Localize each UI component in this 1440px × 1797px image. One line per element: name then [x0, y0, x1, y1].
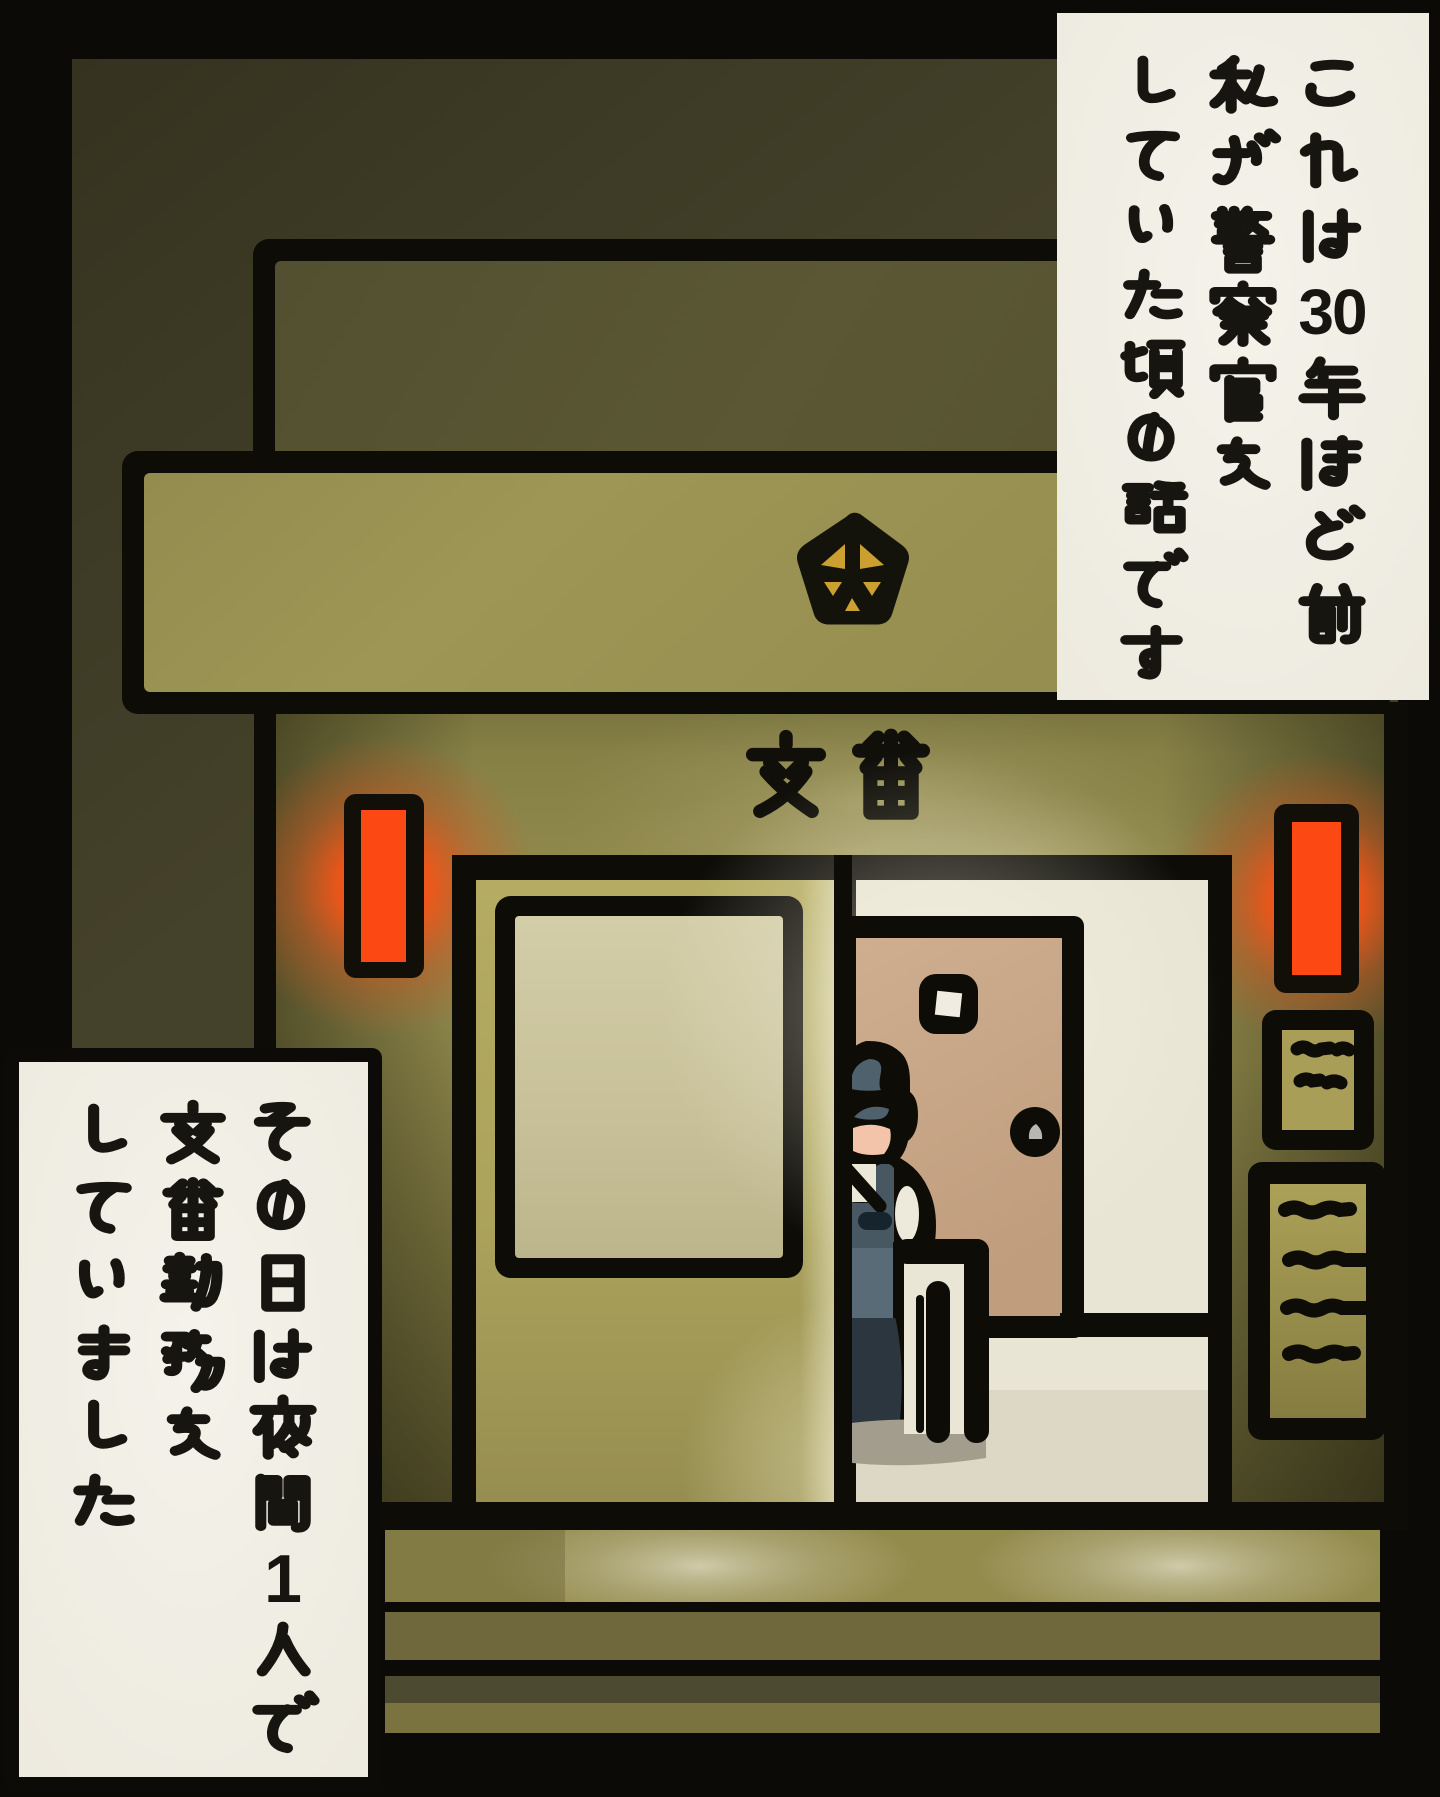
svg-text:30: 30	[1298, 276, 1365, 348]
svg-text:1: 1	[264, 1541, 302, 1617]
